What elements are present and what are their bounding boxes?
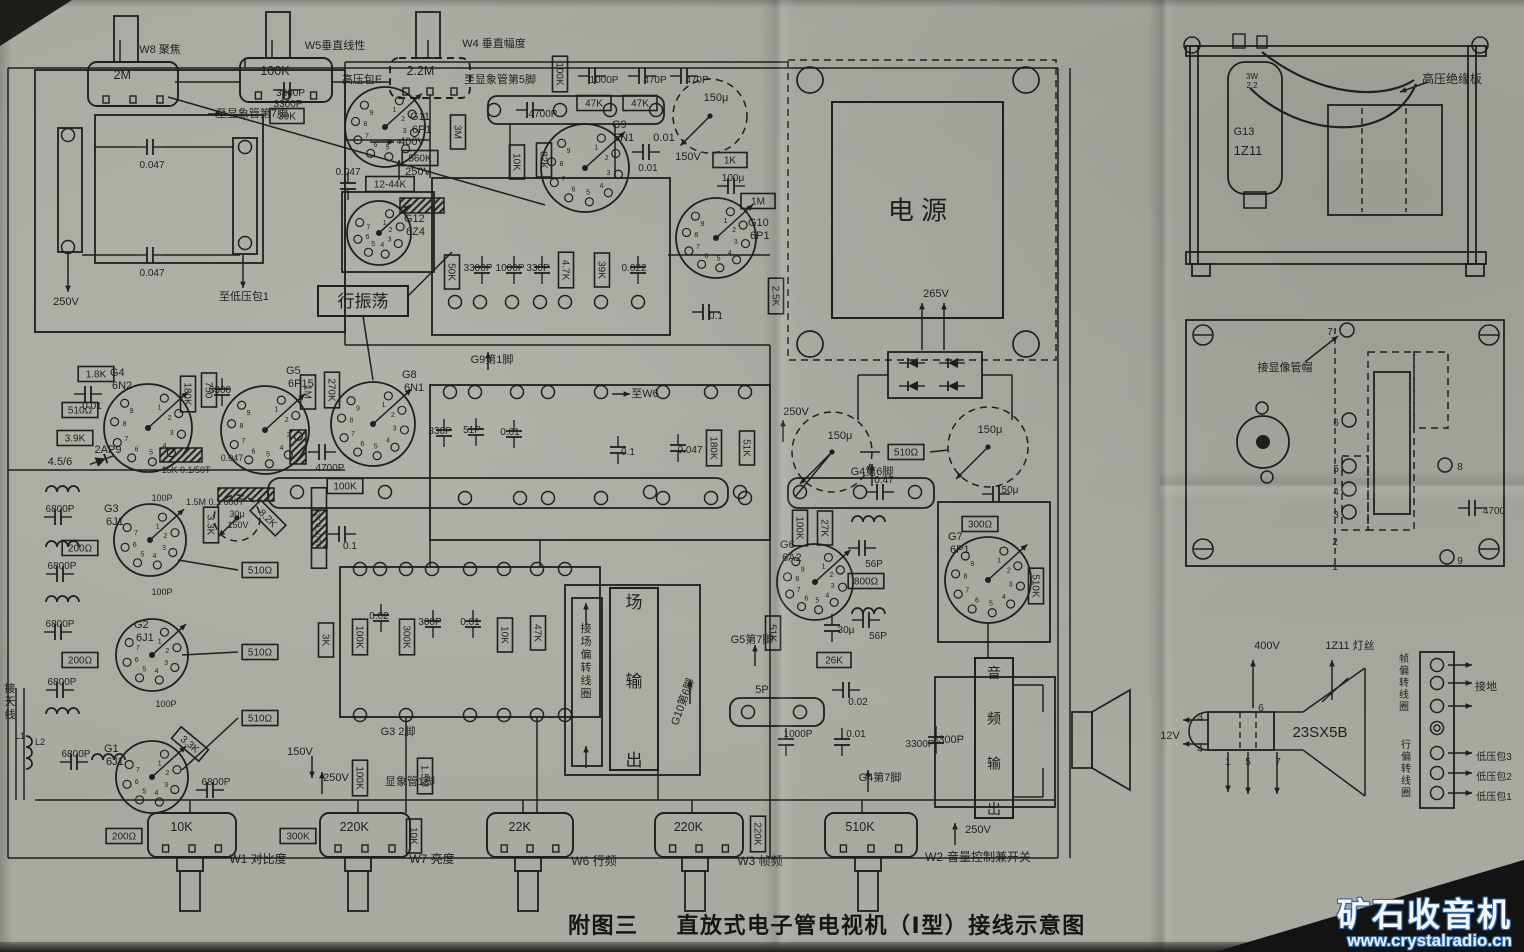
resistor: 1.8K — [78, 367, 114, 382]
svg-text:6: 6 — [704, 253, 708, 260]
svg-text:6: 6 — [975, 598, 979, 605]
tube-socket-G6: 123456789G66A2 — [777, 539, 853, 620]
svg-text:2: 2 — [732, 227, 736, 234]
capacitor: 6800P — [60, 749, 91, 770]
svg-text:100K: 100K — [333, 482, 357, 493]
capacitor: 3300P — [464, 256, 493, 284]
svg-text:6800P: 6800P — [48, 677, 77, 688]
svg-text:G7: G7 — [948, 531, 963, 543]
capacitor: 6800P — [44, 619, 75, 640]
svg-text:音: 音 — [987, 665, 1001, 681]
svg-text:6: 6 — [1333, 418, 1339, 429]
capacitor: 1000P — [778, 728, 813, 756]
resistor: 220K — [751, 816, 766, 852]
resistor: 510Ω — [242, 563, 278, 578]
svg-text:6: 6 — [572, 187, 576, 194]
svg-text:电 源: 电 源 — [888, 195, 947, 225]
svg-text:6: 6 — [1258, 703, 1264, 714]
capacitor: 0.02 — [369, 604, 389, 632]
svg-text:1: 1 — [158, 404, 162, 411]
svg-text:180K: 180K — [181, 382, 192, 406]
svg-text:7: 7 — [696, 244, 700, 251]
capacitor: 0.01 — [460, 610, 481, 638]
svg-text:1: 1 — [1225, 757, 1231, 768]
svg-text:3: 3 — [388, 236, 392, 243]
resistor: 10K — [407, 819, 422, 853]
svg-text:100K: 100K — [260, 64, 290, 78]
label: L2 — [35, 737, 45, 747]
label: 1 — [1332, 562, 1338, 573]
capacitor: 0.1 — [610, 436, 635, 464]
tv-wiring-diagram: 电 源行振荡场输出音频输出123456789G116P11234567G126Z… — [0, 0, 1524, 952]
svg-text:线: 线 — [1401, 774, 1411, 787]
capacitor: 6800P — [46, 561, 77, 582]
svg-text:3: 3 — [164, 660, 168, 667]
svg-text:180K: 180K — [707, 436, 718, 460]
label: 150μ — [704, 92, 729, 104]
svg-text:接: 接 — [5, 682, 16, 695]
svg-text:51K: 51K — [740, 439, 751, 457]
capacitor: 330P — [428, 419, 452, 447]
label: 0.047 — [221, 453, 244, 463]
coil-icon — [46, 596, 79, 602]
capacitor: 0.047 — [136, 139, 165, 171]
watermark-site-url: www.crystalradio.cn — [1337, 932, 1512, 950]
svg-text:7: 7 — [367, 225, 371, 232]
svg-text:470P: 470P — [643, 75, 667, 86]
line-osc-block: 行振荡 — [318, 286, 408, 316]
svg-text:6: 6 — [804, 595, 808, 602]
svg-text:G9第1脚: G9第1脚 — [471, 352, 514, 366]
label: W3 帧频 — [737, 854, 782, 868]
svg-text:2.2M: 2.2M — [407, 64, 435, 78]
svg-text:6J1: 6J1 — [136, 632, 154, 644]
tube-socket-G8: 123456789G86N1 — [331, 369, 424, 466]
svg-text:高压包E: 高压包E — [342, 72, 382, 86]
resistor: 200Ω — [62, 653, 98, 668]
capacitor: 6800P — [196, 777, 231, 798]
svg-text:2: 2 — [1332, 537, 1338, 548]
svg-text:250V: 250V — [323, 772, 349, 784]
svg-text:100K: 100K — [353, 766, 364, 790]
svg-text:9: 9 — [369, 110, 373, 117]
label: 100P — [155, 699, 176, 709]
svg-text:300K: 300K — [286, 832, 310, 843]
svg-text:频: 频 — [987, 710, 1001, 726]
label: 低压包1 — [1476, 790, 1512, 803]
svg-text:0.02: 0.02 — [848, 697, 868, 708]
tube-socket-G1: 1234567G16J1 — [104, 741, 188, 813]
winding — [400, 198, 444, 213]
resistor: 12-44K — [366, 177, 414, 192]
label: 15K 0.1/50T — [161, 465, 211, 475]
svg-text:7: 7 — [351, 431, 355, 438]
label: 至W6 — [631, 388, 659, 400]
label: 1Z11 灯丝 — [1325, 639, 1374, 652]
svg-text:100K: 100K — [553, 62, 564, 86]
svg-text:0.02: 0.02 — [369, 611, 389, 622]
svg-text:100P: 100P — [155, 699, 176, 709]
svg-text:1: 1 — [997, 557, 1001, 564]
svg-text:5: 5 — [386, 144, 390, 151]
svg-text:接地: 接地 — [1475, 680, 1497, 693]
svg-text:5: 5 — [142, 667, 146, 674]
resistor: 3K — [319, 623, 334, 657]
resistor: 180K — [181, 376, 196, 412]
label: W4 垂直幅度 — [462, 36, 526, 50]
svg-text:G11: G11 — [410, 111, 430, 123]
label: 至显象管第5脚 — [464, 72, 536, 86]
label: 250V — [783, 406, 809, 418]
svg-text:2: 2 — [829, 572, 833, 579]
svg-text:圈: 圈 — [1401, 787, 1411, 799]
capacitor: 1000P — [496, 256, 525, 284]
resistor: 47K — [577, 96, 611, 111]
svg-text:8: 8 — [239, 423, 243, 430]
svg-text:6: 6 — [252, 449, 256, 456]
capacitor: 56P — [848, 540, 883, 570]
svg-text:8: 8 — [963, 573, 967, 580]
svg-text:6N1: 6N1 — [614, 132, 634, 144]
svg-text:G10第6脚: G10第6脚 — [667, 676, 697, 727]
svg-text:0.47: 0.47 — [874, 475, 894, 486]
svg-text:G1: G1 — [104, 743, 119, 755]
svg-text:1000P: 1000P — [590, 75, 619, 86]
resistor: 300K — [400, 619, 415, 655]
svg-text:5: 5 — [374, 443, 378, 450]
svg-text:5: 5 — [989, 600, 993, 607]
svg-text:400V: 400V — [399, 136, 425, 148]
watermark: 矿石收音机 www.crystalradio.cn — [1337, 898, 1512, 950]
label: W1 对比度 — [229, 851, 286, 866]
svg-text:9: 9 — [567, 148, 571, 155]
svg-text:4: 4 — [280, 445, 284, 452]
svg-text:1M: 1M — [301, 385, 312, 399]
svg-text:4700P: 4700P — [529, 109, 558, 120]
label: 100P — [151, 587, 172, 597]
svg-text:偏: 偏 — [1399, 664, 1409, 677]
svg-text:1000P: 1000P — [496, 263, 525, 274]
label: 接显像管帽 — [1258, 360, 1313, 374]
svg-text:2: 2 — [401, 116, 405, 123]
resistor: 200Ω — [62, 541, 98, 556]
svg-text:7: 7 — [365, 133, 369, 140]
svg-text:转: 转 — [581, 660, 592, 674]
label: 5P — [755, 684, 768, 696]
figure-caption: 附图三直放式电子管电视机（Ⅰ型）接线示意图 — [568, 908, 1086, 940]
label: 4.5/6 — [48, 456, 72, 468]
resistor: 300Ω — [962, 517, 998, 532]
svg-text:L1: L1 — [15, 731, 25, 741]
svg-text:场: 场 — [581, 634, 592, 648]
svg-text:低压包3: 低压包3 — [1476, 750, 1512, 763]
svg-text:1: 1 — [822, 564, 826, 571]
resistor: 10K — [510, 145, 525, 179]
svg-text:3300P: 3300P — [464, 263, 493, 274]
label: 接地 — [1475, 680, 1497, 693]
svg-text:3300P: 3300P — [906, 739, 935, 750]
svg-text:行振荡: 行振荡 — [338, 292, 389, 311]
label: 行偏转线圈 — [1401, 738, 1411, 799]
label: G4第7脚 — [859, 770, 902, 784]
label: W5垂直线性 — [305, 38, 366, 52]
svg-text:9: 9 — [700, 221, 704, 228]
coil-icon — [46, 708, 79, 714]
svg-text:低压包2: 低压包2 — [1476, 770, 1512, 783]
winding — [290, 430, 306, 464]
scanned-schematic-photo: 电 源行振荡场输出音频输出123456789G116P11234567G126Z… — [0, 0, 1524, 952]
svg-text:转: 转 — [1399, 676, 1409, 689]
svg-text:510K: 510K — [1029, 574, 1040, 598]
svg-text:1.8K: 1.8K — [86, 370, 107, 381]
label: 6 — [1258, 703, 1264, 714]
svg-text:7: 7 — [134, 530, 138, 537]
svg-text:6P1: 6P1 — [412, 124, 432, 136]
label: 帧偏转线圈 — [1399, 652, 1409, 713]
label: 3 — [1333, 510, 1339, 521]
svg-text:51K: 51K — [766, 624, 777, 642]
svg-text:0.1: 0.1 — [621, 447, 635, 458]
svg-text:接: 接 — [581, 622, 592, 635]
diode-icon — [939, 381, 965, 391]
label: 接天线 — [5, 682, 16, 721]
svg-text:2: 2 — [389, 227, 393, 234]
svg-text:6: 6 — [133, 542, 137, 549]
svg-text:8: 8 — [363, 121, 367, 128]
svg-text:3: 3 — [607, 170, 611, 177]
svg-text:3K: 3K — [319, 634, 330, 647]
label: 400V — [1254, 640, 1280, 652]
svg-text:100P: 100P — [151, 587, 172, 597]
coil-icon — [852, 516, 885, 522]
svg-text:7: 7 — [561, 176, 565, 183]
svg-text:220K: 220K — [674, 820, 704, 834]
resistor: 560K — [402, 151, 438, 166]
svg-text:300P: 300P — [418, 617, 442, 628]
svg-text:圈: 圈 — [1399, 701, 1409, 713]
label: 低压包3 — [1476, 750, 1512, 763]
resistor: 27K — [818, 511, 833, 545]
svg-text:250V: 250V — [53, 296, 79, 308]
resistor: 1M — [741, 194, 775, 209]
svg-text:100K: 100K — [353, 625, 364, 649]
svg-text:6Z4: 6Z4 — [406, 226, 425, 238]
svg-text:51P: 51P — [463, 425, 481, 436]
audio-output-block: 音频输出 — [975, 658, 1013, 818]
svg-text:200Ω: 200Ω — [112, 832, 137, 843]
svg-text:6: 6 — [135, 779, 139, 786]
speaker-icon — [1072, 690, 1130, 790]
svg-text:400V: 400V — [1254, 640, 1280, 652]
svg-text:G4第7脚: G4第7脚 — [859, 770, 902, 784]
tube-socket-G9: 123456789G96N1 — [541, 119, 634, 212]
svg-text:2.2: 2.2 — [1246, 81, 1258, 90]
resistor: 3.3K — [204, 507, 219, 543]
svg-text:30μ: 30μ — [838, 625, 855, 636]
potentiometer-2M: 2M — [88, 16, 178, 106]
svg-text:出: 出 — [626, 751, 643, 770]
svg-text:2: 2 — [1007, 568, 1011, 575]
svg-text:G12: G12 — [404, 213, 425, 225]
label: 9 — [1457, 556, 1463, 567]
svg-text:线: 线 — [5, 707, 16, 721]
svg-text:0.022: 0.022 — [621, 263, 646, 274]
capacitor: 0.01 — [500, 420, 522, 448]
svg-text:150V: 150V — [287, 746, 313, 758]
svg-text:W8 聚焦: W8 聚焦 — [139, 43, 181, 56]
svg-text:150μ: 150μ — [828, 430, 853, 442]
electrolytic-capacitor — [948, 407, 1028, 487]
svg-text:1: 1 — [393, 107, 397, 114]
svg-text:0.047: 0.047 — [335, 167, 360, 178]
capacitor: 56P — [852, 612, 887, 642]
svg-text:3: 3 — [403, 128, 407, 135]
svg-text:W1 对比度: W1 对比度 — [229, 851, 286, 866]
panel-hardware — [797, 37, 1499, 800]
svg-text:5: 5 — [140, 552, 144, 559]
svg-text:高压绝缘板: 高压绝缘板 — [1422, 71, 1482, 86]
svg-text:1M: 1M — [751, 197, 765, 208]
svg-text:行: 行 — [1401, 738, 1411, 751]
svg-text:线: 线 — [581, 673, 592, 687]
label: 4 — [1333, 487, 1339, 498]
tube-socket-G10: 123456789G106P1 — [676, 198, 770, 278]
label: 1 — [1225, 757, 1231, 768]
svg-text:47K: 47K — [585, 99, 603, 110]
svg-text:200Ω: 200Ω — [68, 656, 93, 667]
svg-text:9: 9 — [130, 408, 134, 415]
svg-text:6800P: 6800P — [62, 749, 91, 760]
svg-text:510Ω: 510Ω — [894, 448, 919, 459]
capacitor — [1458, 500, 1486, 516]
svg-text:线: 线 — [1399, 688, 1409, 701]
potentiometer-100K: 100K3300P — [240, 12, 332, 102]
svg-text:4: 4 — [1197, 744, 1203, 755]
svg-text:6: 6 — [373, 142, 377, 149]
svg-text:G3: G3 — [104, 503, 119, 515]
svg-text:250V: 250V — [965, 824, 991, 836]
resistor: 1K — [713, 153, 747, 168]
svg-text:1: 1 — [275, 406, 279, 413]
label: 8 — [1457, 462, 1463, 473]
resistor: 100K — [553, 56, 568, 92]
potentiometer-220K: 220K — [655, 813, 743, 911]
resistor: 100K — [327, 479, 363, 494]
svg-text:L2: L2 — [35, 737, 45, 747]
svg-text:9: 9 — [801, 566, 805, 573]
svg-text:转: 转 — [1401, 762, 1411, 775]
svg-text:330P: 330P — [428, 426, 452, 437]
power-block: 电 源 — [832, 102, 1003, 318]
svg-text:6: 6 — [135, 447, 139, 454]
svg-text:8: 8 — [694, 232, 698, 239]
figure-number: 附图三 — [568, 913, 639, 938]
svg-text:15K 0.1/50T: 15K 0.1/50T — [161, 465, 211, 475]
resistor: 180K — [707, 430, 722, 466]
svg-text:3: 3 — [393, 426, 397, 433]
svg-text:至低压包1: 至低压包1 — [219, 290, 269, 303]
svg-text:27K: 27K — [818, 519, 829, 537]
svg-text:3: 3 — [1009, 582, 1013, 589]
resistor: 4.7K — [559, 252, 574, 288]
resistor: 2.5K — [769, 278, 784, 314]
capacitor: 0.1 — [328, 526, 357, 552]
resistor: 100K — [353, 760, 368, 796]
svg-text:9: 9 — [247, 410, 251, 417]
svg-text:7: 7 — [136, 645, 140, 652]
resistor: 510Ω — [242, 645, 278, 660]
svg-text:330P: 330P — [526, 263, 550, 274]
label: W8 聚焦 — [139, 43, 181, 56]
svg-text:3: 3 — [831, 583, 835, 590]
svg-text:6: 6 — [360, 441, 364, 448]
resistor: 200Ω — [106, 829, 142, 844]
svg-text:输: 输 — [626, 672, 643, 691]
capacitor: 0.1 — [692, 304, 723, 322]
svg-text:至W6: 至W6 — [631, 388, 659, 400]
svg-text:150μ: 150μ — [978, 424, 1003, 436]
svg-text:270K: 270K — [325, 378, 336, 402]
svg-text:G10: G10 — [748, 217, 769, 229]
svg-text:5: 5 — [1333, 464, 1339, 475]
svg-text:12-44K: 12-44K — [374, 180, 407, 191]
svg-text:9: 9 — [970, 561, 974, 568]
svg-text:4700P: 4700P — [316, 463, 345, 474]
svg-text:5: 5 — [266, 451, 270, 458]
svg-text:6: 6 — [366, 234, 370, 241]
svg-text:9: 9 — [356, 406, 360, 413]
svg-text:5: 5 — [142, 789, 146, 796]
resistor: 3.3K — [172, 727, 209, 761]
capacitor: 0.047 — [335, 167, 360, 200]
label: 低压包2 — [1476, 770, 1512, 783]
label: L1 — [15, 731, 25, 741]
svg-text:9: 9 — [1457, 556, 1463, 567]
label: 3300P — [932, 734, 964, 746]
svg-text:5: 5 — [149, 449, 153, 456]
svg-text:100K: 100K — [793, 516, 804, 540]
svg-text:6J1: 6J1 — [106, 516, 124, 528]
label: 23SX5B — [1292, 724, 1347, 741]
svg-text:0.047: 0.047 — [677, 445, 702, 456]
svg-text:圈: 圈 — [581, 687, 592, 700]
coil-icon — [26, 736, 32, 769]
resistor: 510K — [1029, 568, 1044, 604]
capacitor: 0.01 — [834, 728, 866, 756]
svg-text:510Ω: 510Ω — [248, 648, 273, 659]
resistor: 50K — [445, 255, 460, 289]
svg-text:1000P: 1000P — [784, 729, 813, 740]
electrolytic-capacitor — [673, 79, 747, 153]
svg-text:1K: 1K — [724, 156, 737, 167]
svg-text:0.01: 0.01 — [846, 729, 866, 740]
svg-text:300Ω: 300Ω — [968, 520, 993, 531]
svg-text:10K: 10K — [407, 827, 418, 845]
svg-text:8: 8 — [122, 421, 126, 428]
svg-text:1: 1 — [156, 523, 160, 530]
tube-socket-G7: 123456789G76P1 — [945, 531, 1031, 623]
label: 3W — [1246, 72, 1258, 81]
label: 至低压包1 — [219, 290, 269, 303]
svg-text:3: 3 — [164, 782, 168, 789]
label: W6 行频 — [571, 854, 616, 868]
svg-text:200Ω: 200Ω — [68, 544, 93, 555]
svg-text:0.01: 0.01 — [653, 132, 674, 144]
label: 250V — [323, 772, 349, 784]
svg-text:4.5/6: 4.5/6 — [48, 456, 72, 468]
winding — [218, 488, 274, 501]
svg-text:82K: 82K — [537, 151, 548, 169]
